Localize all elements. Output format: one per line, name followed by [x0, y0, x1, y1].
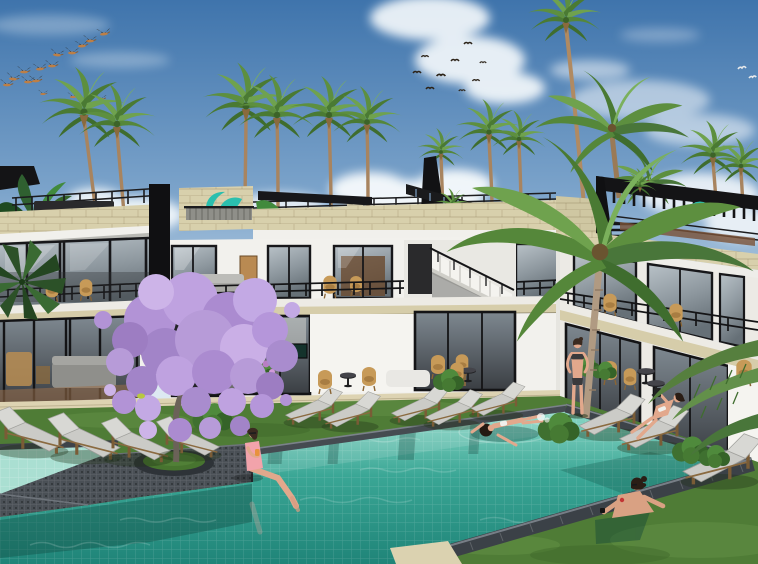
stair-doorway — [408, 244, 432, 294]
tiny-yellow-bird — [137, 393, 145, 398]
drink-glass — [255, 449, 260, 456]
wristband — [600, 508, 605, 513]
resort-render — [0, 0, 758, 564]
logo-wall — [179, 186, 254, 231]
white-daybed — [386, 370, 430, 387]
sunglasses — [249, 433, 256, 434]
red-strap — [620, 498, 624, 502]
